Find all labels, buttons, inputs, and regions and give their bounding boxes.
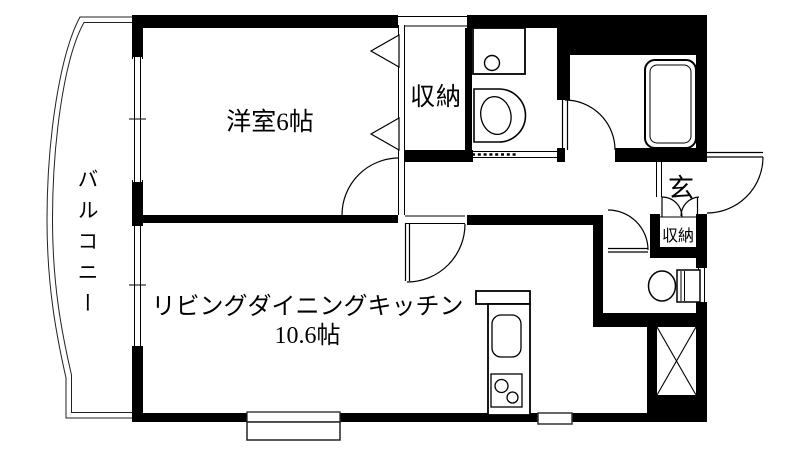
- wall-bath-left: [557, 17, 570, 100]
- wall-left-c: [132, 346, 143, 422]
- wall-westroom-bottom: [132, 215, 398, 223]
- wall-bottom: [132, 413, 662, 422]
- window-ldk-bottom: [247, 412, 340, 440]
- bathtub: [645, 60, 696, 148]
- balcony-label: バルコニー: [72, 168, 102, 323]
- washing-machine-pan: [473, 28, 525, 74]
- wall-entry-storage-bottom: [650, 247, 707, 258]
- ldk-label-line1: リビングダイニングキッチン: [140, 293, 475, 322]
- burner-small: [507, 392, 518, 403]
- floor-plan: 洋室6帖 収納 リビングダイニングキッチン 10.6帖 バルコニー 玄 収納: [0, 0, 800, 461]
- entrance-storage-label: 収納: [658, 222, 698, 246]
- kitchen-counter: [476, 291, 530, 415]
- wall-toilet-left: [593, 225, 603, 317]
- wall-mass-top-right: [563, 15, 707, 55]
- burner-large: [495, 380, 508, 393]
- vent-ldk-bottom: [538, 413, 572, 424]
- ldk-label: リビングダイニングキッチン 10.6帖: [140, 293, 475, 351]
- wall-bath-bottom-corner: [557, 148, 565, 162]
- wall-ldk-top: [467, 215, 603, 225]
- wall-left-a: [132, 15, 143, 59]
- toilet: [649, 270, 701, 302]
- entry-door: [707, 153, 763, 214]
- washbasin-vanity: [474, 89, 525, 142]
- closet-label: 収納: [401, 77, 471, 113]
- washroom-sliding-door: [472, 152, 557, 158]
- wall-top-left: [132, 15, 398, 28]
- bathroom-door: [563, 100, 616, 150]
- kitchen-sink: [492, 315, 521, 357]
- wall-shaft-left: [647, 320, 657, 418]
- ldk-label-line2: 10.6帖: [140, 322, 475, 351]
- western-room-door-arc: [342, 158, 399, 215]
- entrance-label: 玄: [666, 168, 696, 205]
- toilet-door: [608, 210, 648, 252]
- wall-closet-bottom: [404, 150, 473, 162]
- pipe-shaft: [657, 327, 696, 395]
- ldk-door: [406, 223, 466, 282]
- western-room-label: 洋室6帖: [175, 102, 365, 138]
- wall-right-a: [696, 15, 707, 152]
- closet-door-swing-marks: [371, 35, 399, 150]
- window-western-room: [129, 57, 146, 182]
- wall-gap-above-closet: [398, 15, 467, 28]
